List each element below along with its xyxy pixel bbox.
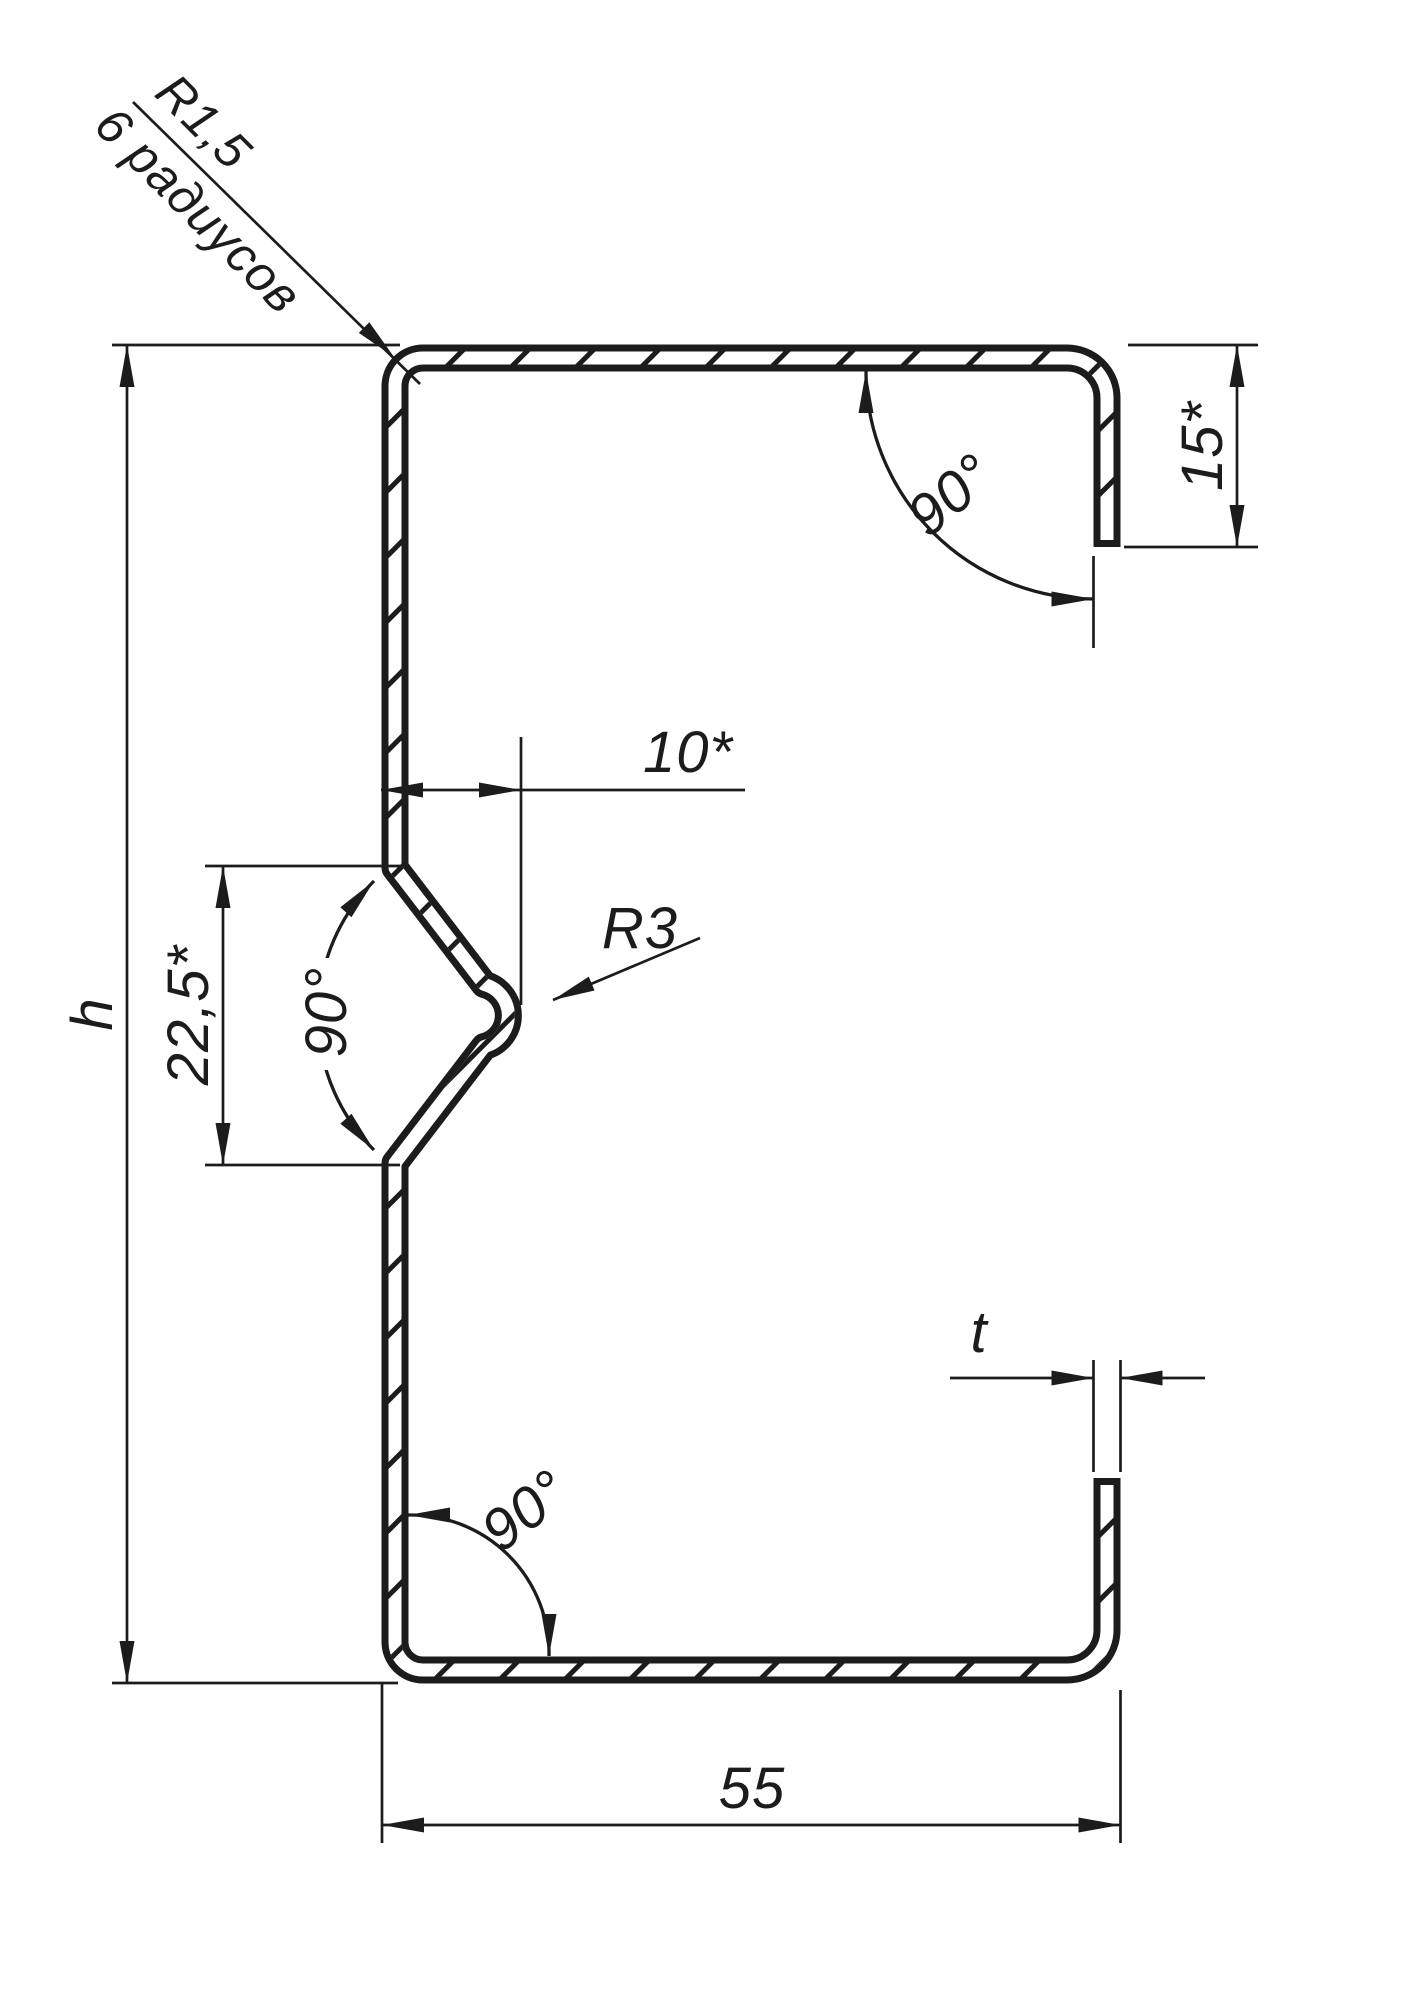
arrowhead (120, 345, 135, 387)
dimension-profile-width: 55 (382, 1684, 1121, 1843)
drawing-canvas: R1,5 6 радиусов h 22,5* 90° 10* (0, 0, 1413, 2000)
profile-section (395, 358, 1121, 1670)
arrowhead (1121, 1371, 1163, 1386)
arrowhead (382, 1818, 424, 1833)
leader-corner-radius: R1,5 6 радиусов (84, 63, 420, 384)
label-angle-top-right: 90° (895, 441, 1006, 549)
label-lip-length: 15* (1170, 400, 1235, 492)
label-profile-width: 55 (719, 1756, 786, 1821)
arrowhead (859, 371, 874, 413)
label-thickness: t (970, 1300, 989, 1365)
arrowhead (1052, 1371, 1094, 1386)
arrowhead (542, 1614, 557, 1656)
angle-bottom-left: 90° (408, 1457, 581, 1656)
leader-rib-radius: R3 (550, 896, 700, 1007)
dimension-lip-length: 15* (1124, 345, 1258, 547)
arrowhead (1079, 1818, 1121, 1833)
technical-drawing: R1,5 6 радиусов h 22,5* 90° 10* (0, 0, 1413, 2000)
label-profile-height: h (60, 997, 125, 1030)
label-rib-depth: 10* (643, 720, 735, 785)
dimension-thickness: t (950, 1300, 1205, 1472)
arrowhead (1052, 592, 1094, 607)
label-angle-bottom-left: 90° (469, 1457, 581, 1564)
leader-arrowhead (359, 322, 399, 362)
label-rib-radius: R3 (602, 896, 678, 961)
angle-rib: 90° (294, 876, 380, 1155)
label-angle-rib: 90° (294, 967, 359, 1058)
dimension-rib-height: 22,5* (156, 866, 400, 1165)
dimension-rib-depth: 10* (381, 720, 745, 1005)
arrowhead (408, 1508, 450, 1523)
arrowhead (216, 866, 231, 908)
leader-arrowhead (550, 977, 595, 1007)
profile-outline (395, 358, 1107, 1670)
arrowhead (479, 783, 521, 798)
arrowhead (1230, 505, 1245, 547)
arrowhead (120, 1641, 135, 1683)
arrowhead (1230, 345, 1245, 387)
arrowhead (216, 1123, 231, 1165)
label-rib-height: 22,5* (156, 943, 221, 1086)
angle-top-right: 90° (859, 371, 1094, 648)
